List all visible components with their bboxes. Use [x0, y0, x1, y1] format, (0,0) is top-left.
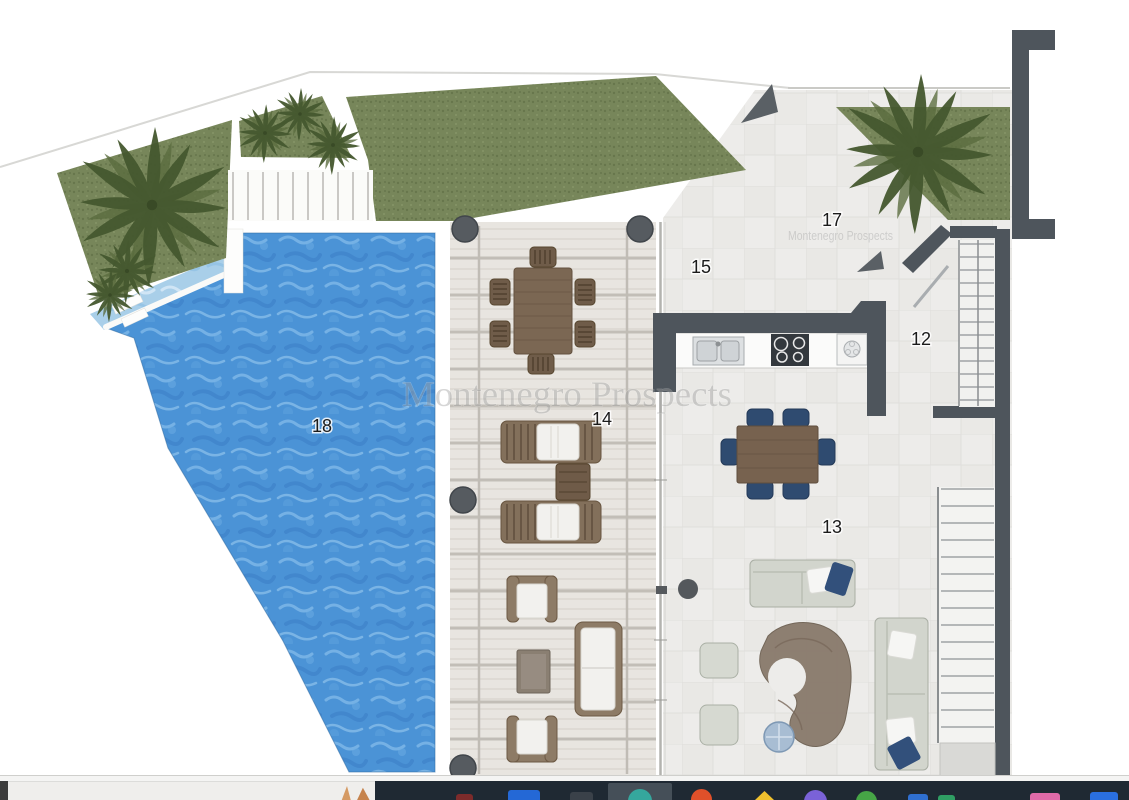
image-fragment-shape	[339, 786, 355, 800]
sun-lounger	[501, 421, 601, 463]
outdoor-chair	[490, 279, 510, 305]
outdoor-chair	[575, 279, 595, 305]
image-fragment-shape	[353, 787, 371, 800]
taskbar-icon-app-photos[interactable]	[1030, 793, 1060, 800]
screen: 17 15 12 14 13 18 Montenegro Prospects M…	[0, 0, 1129, 800]
outdoor-armchair	[507, 576, 557, 622]
door-frame-stop	[656, 586, 667, 594]
taskbar[interactable]	[0, 781, 1129, 800]
side-table	[556, 464, 590, 500]
outdoor-sofa	[575, 622, 622, 716]
room-label-13: 13	[822, 517, 842, 537]
right-wall	[995, 229, 1010, 780]
structural-column	[678, 579, 698, 599]
outdoor-chair	[575, 321, 595, 347]
taskbar-icon-app-red[interactable]	[456, 794, 473, 800]
room-label-17: 17	[822, 210, 842, 230]
room-label-12: 12	[911, 329, 931, 349]
sun-lounger	[501, 501, 601, 543]
pouf	[700, 643, 738, 678]
taskbar-left-sliver	[0, 781, 8, 800]
dining-chair	[721, 439, 739, 465]
taskbar-light-section	[8, 781, 375, 800]
watermark-text: Montenegro Prospects	[402, 374, 732, 414]
taskbar-icon-app-dark-square[interactable]	[570, 792, 593, 800]
courtyard-wall	[950, 226, 997, 238]
image-fragment-icon	[333, 786, 375, 800]
stair-wall-stub	[933, 406, 995, 418]
sofa-right	[875, 618, 928, 771]
taskbar-icon-app-green-2[interactable]	[938, 795, 955, 800]
room-label-15: 15	[691, 257, 711, 277]
dining-chair	[747, 481, 773, 499]
pool-step-platform	[224, 229, 243, 293]
outdoor-dining-table	[514, 268, 572, 354]
kitchen-appliance	[837, 334, 867, 365]
floor-plan-image: 17 15 12 14 13 18 Montenegro Prospects M…	[0, 0, 1129, 781]
taskbar-icon-app-blue-window[interactable]	[508, 790, 540, 800]
taskbar-icon-app-blue-3[interactable]	[1090, 792, 1118, 800]
room-label-18: 18	[312, 416, 332, 436]
dining-chair	[783, 481, 809, 499]
outdoor-chair	[530, 247, 556, 267]
kitchen	[674, 333, 868, 368]
kitchen-sink	[693, 337, 744, 365]
stair-landing	[940, 743, 995, 776]
garden-steps	[228, 170, 373, 221]
taskbar-icon-app-blue-2[interactable]	[908, 794, 928, 800]
pouf	[700, 705, 738, 745]
outdoor-chair	[490, 321, 510, 347]
taskbar-dark-section	[375, 781, 1129, 800]
dining-chair	[817, 439, 835, 465]
dining-chair	[747, 409, 773, 427]
outdoor-coffee-table	[517, 650, 550, 693]
dining-chair	[783, 409, 809, 427]
cooktop	[771, 334, 809, 366]
sofa-top	[750, 560, 855, 607]
watermark-text-small: Montenegro Prospects	[788, 228, 893, 243]
outdoor-chair	[528, 354, 554, 374]
outdoor-armchair	[507, 716, 557, 762]
round-side-table	[764, 722, 794, 752]
